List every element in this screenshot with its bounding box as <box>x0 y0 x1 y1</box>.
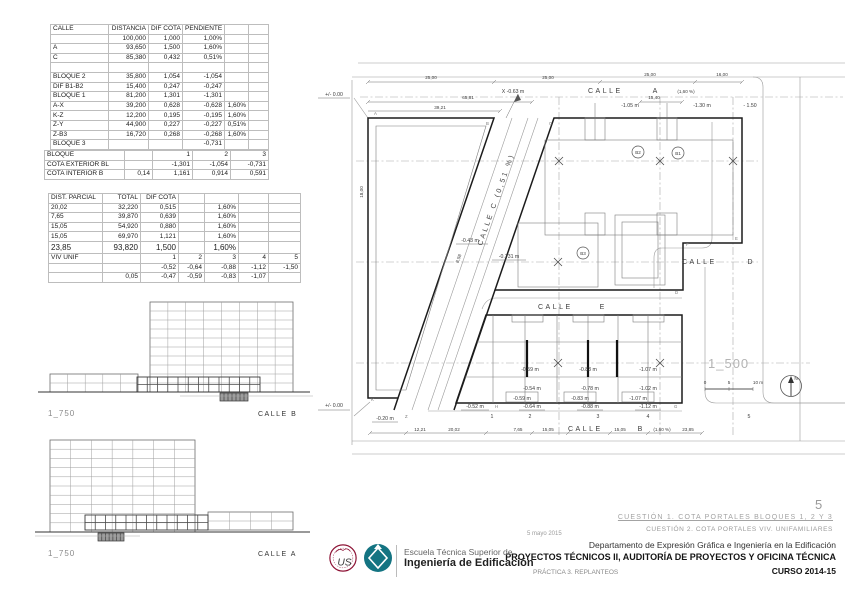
curso-label: CURSO 2014-15 <box>772 566 836 576</box>
elevation-a-street: CALLE A <box>258 551 297 558</box>
table-cell: 1,000 <box>149 34 183 44</box>
table-cell <box>205 194 239 204</box>
table-row: A93,6501,5001,60% <box>51 44 269 54</box>
datum-top: +/- 0.00 <box>325 92 343 98</box>
logo-divider <box>396 545 397 577</box>
table-cell: DIF COTA <box>149 25 183 35</box>
sb0: 0 <box>704 380 707 385</box>
calle-e-name: CALLE <box>538 304 573 311</box>
table-cell <box>125 160 153 170</box>
table-cell <box>103 253 141 263</box>
table-row: Z-Y44,9000,227-0,2270,51% <box>51 120 269 130</box>
table-cell: PENDIENTE <box>183 25 225 35</box>
bd-1505b: 15,05 <box>614 427 626 432</box>
v-b: B <box>486 121 489 126</box>
table-cell: -0,59 <box>179 273 205 283</box>
r-m112: -1.12 m <box>639 404 657 410</box>
bd-765: 7,65 <box>514 427 523 432</box>
table-cell <box>269 213 301 223</box>
elevation-b-scale: 1_750 <box>48 409 75 418</box>
table-row: BLOQUE 3-0,731 <box>51 140 269 150</box>
table-cell: 23,85 <box>49 241 103 253</box>
dim-1800: 18,00 <box>359 186 364 198</box>
m020: -0.20 m <box>376 416 394 422</box>
table-cell: COTA INTERIOR B <box>45 170 125 180</box>
table-cell: 0,227 <box>149 120 183 130</box>
m105: -1.05 m <box>621 103 639 109</box>
dim-3921: 39,21 <box>434 105 446 110</box>
table-cell: C <box>51 53 109 63</box>
table-cell: DIF COTA <box>141 194 179 204</box>
table-cell: 1,60% <box>225 101 249 111</box>
table-cell <box>225 44 249 54</box>
portal-markers <box>577 146 684 259</box>
table-cell: COTA EXTERIOR BL <box>45 160 125 170</box>
dim-25c: 25,00 <box>644 72 656 77</box>
table-cell <box>269 222 301 232</box>
north-arrow-icon: N <box>781 376 802 397</box>
table-cell: 1,054 <box>149 72 183 82</box>
table-cell <box>109 63 149 73</box>
table-cell <box>249 53 269 63</box>
university-seal-icon: US <box>328 543 358 573</box>
box-m107: -1.07 m <box>629 396 647 402</box>
dim-1540: 15,40 <box>648 95 660 100</box>
bd-2002: 20,02 <box>448 427 460 432</box>
scale: 1_500 <box>708 356 749 371</box>
table-cell: 20,02 <box>49 203 103 213</box>
table-cell: 1,60% <box>205 232 239 242</box>
table-row: -0,52-0,64-0,88-1,12-1,50 <box>49 263 301 273</box>
table-cell: -0,268 <box>183 130 225 140</box>
table-cell: 2 <box>179 253 205 263</box>
seal-monogram: US <box>337 558 351 569</box>
base-strip-grid <box>85 515 208 530</box>
calle-d-letter: D <box>747 259 752 266</box>
table-row: COTA INTERIOR B0,141,1610,9140,591 <box>45 170 269 180</box>
h-m054: -0.54 m <box>523 386 541 392</box>
v-f: F <box>686 242 689 247</box>
table-row: COTA EXTERIOR BL-1,301-1,054-0,731 <box>45 160 269 170</box>
h-m102: -1.02 m <box>639 386 657 392</box>
table-cell: -0,52 <box>141 263 179 273</box>
table-cell <box>179 194 205 204</box>
table-cell <box>249 63 269 73</box>
table-cell: 1,60% <box>205 213 239 223</box>
table-row: DIST. PARCIALTOTALDIF COTA <box>49 194 301 204</box>
table-cell <box>239 203 269 213</box>
dim-25b: 25,00 <box>542 75 554 80</box>
table-cell: 85,380 <box>109 53 149 63</box>
party-walls <box>527 340 617 377</box>
table-cell: BLOQUE 3 <box>51 140 109 150</box>
calle-b-slope: (1,60 %) <box>653 427 671 432</box>
elevation-calle-b: 1_750 CALLE B <box>30 292 322 424</box>
table-cell: 15,05 <box>49 232 103 242</box>
table-cell <box>225 72 249 82</box>
table-cell: -0,64 <box>179 263 205 273</box>
table-cell: -0,247 <box>183 82 225 92</box>
school-name-line1: Escuela Técnica Superior de <box>404 547 534 557</box>
table-cell: -1,054 <box>183 72 225 82</box>
table-cell: -0,88 <box>205 263 239 273</box>
department-label: Departamento de Expresión Gráfica e Inge… <box>589 540 836 550</box>
dim-16: 16,00 <box>716 72 728 77</box>
table-cell <box>179 241 205 253</box>
table-cell <box>239 194 269 204</box>
table-cell: 1,500 <box>141 241 179 253</box>
table-cell: 0,195 <box>149 111 183 121</box>
m043: -0.43 m <box>461 238 479 244</box>
table-cell: K-Z <box>51 111 109 121</box>
v-d: D <box>675 290 678 295</box>
table-row: A-X39,2000,628-0,6281,60% <box>51 101 269 111</box>
elevation-calle-a: 1_750 CALLE A <box>30 432 322 568</box>
table-cell: 100,000 <box>109 34 149 44</box>
table-cell: 44,900 <box>109 120 149 130</box>
table-cell: BLOQUE <box>45 151 125 161</box>
grid-axes <box>356 97 843 437</box>
road-edges <box>352 63 845 454</box>
table-cell <box>183 63 225 73</box>
m130: -1.30 m <box>693 103 711 109</box>
calle-a-letter: A <box>653 88 658 95</box>
n4: 4 <box>647 414 650 420</box>
table-cell: 0,914 <box>193 170 231 180</box>
n1: 1 <box>491 414 494 420</box>
table-cell <box>225 34 249 44</box>
table-cell <box>249 92 269 102</box>
table-cell <box>269 203 301 213</box>
table-cell: -0,628 <box>183 101 225 111</box>
table-cell <box>269 273 301 283</box>
h-m107: -1.07 m <box>639 367 657 373</box>
table-cell: 39,200 <box>109 101 149 111</box>
site-plan: N +/- 0.00 +/- 0.00 25,00 25,00 25,00 16… <box>310 52 848 464</box>
table-cell: -1,12 <box>239 263 269 273</box>
calle-d-name: CALLE <box>682 259 717 266</box>
school-logo-icon <box>362 542 394 574</box>
h-m083: -0.83 m <box>579 367 597 373</box>
table-cell: BLOQUE 1 <box>51 92 109 102</box>
elevation-b-street: CALLE B <box>258 411 297 418</box>
m150: - 1.50 <box>743 103 756 109</box>
table-cell <box>269 194 301 204</box>
table-cell <box>239 222 269 232</box>
table-cell <box>249 25 269 35</box>
table-cell: BLOQUE 2 <box>51 72 109 82</box>
table-cell: 0,639 <box>141 213 179 223</box>
table-row: BLOQUE123 <box>45 151 269 161</box>
table-cell: -0,731 <box>183 140 225 150</box>
table-cell: -0,47 <box>141 273 179 283</box>
calle-b-name: CALLE <box>568 426 603 433</box>
practice-label: PRÁCTICA 3. REPLANTEOS <box>533 569 618 576</box>
v-c: C <box>549 121 552 126</box>
table-cell: A <box>51 44 109 54</box>
calle-a-slope: (1,60 %) <box>677 89 695 94</box>
box-m083: -0.83 m <box>571 396 589 402</box>
table-cell: 1,60% <box>205 241 239 253</box>
calle-b-letter: B <box>638 426 643 433</box>
table-row: 23,8593,8201,5001,60% <box>49 241 301 253</box>
bd-1221: 12,21 <box>414 427 426 432</box>
table-cell: 0,880 <box>141 222 179 232</box>
table-cell: Z-B3 <box>51 130 109 140</box>
table-cell: 32,220 <box>103 203 141 213</box>
box-m059: -0.59 m <box>513 396 531 402</box>
table-cell: -1,301 <box>183 92 225 102</box>
table-cell: 3 <box>231 151 269 161</box>
elevation-a-scale: 1_750 <box>48 549 75 558</box>
table-cell: 54,920 <box>103 222 141 232</box>
table-cell <box>225 63 249 73</box>
table-cell <box>249 140 269 150</box>
v-a: A <box>374 111 377 116</box>
n2: 2 <box>529 414 532 420</box>
table-cell: 0,05 <box>103 273 141 283</box>
table-cell: 0,515 <box>141 203 179 213</box>
table-cell: 0,628 <box>149 101 183 111</box>
calle-a-name: CALLE <box>588 88 623 95</box>
v-k: K <box>371 397 374 402</box>
v-e: E <box>735 236 738 241</box>
b1: B1 <box>675 151 681 156</box>
table-cell <box>269 241 301 253</box>
table-cell: 1,60% <box>225 111 249 121</box>
table-cell <box>225 25 249 35</box>
table-cell: 93,650 <box>109 44 149 54</box>
table-cell: CALLE <box>51 25 109 35</box>
table-cell: 15,05 <box>49 222 103 232</box>
table-cell: 4 <box>239 253 269 263</box>
base-strip-grid <box>137 377 260 392</box>
table-cell: 0,51% <box>225 120 249 130</box>
table-cell: 1,60% <box>205 203 239 213</box>
table-cell <box>109 140 149 150</box>
table-cell: -0,83 <box>205 273 239 283</box>
table-cell: 12,200 <box>109 111 149 121</box>
r-m064: -0.64 m <box>523 404 541 410</box>
r-m088: -0.88 m <box>581 404 599 410</box>
table-cell: 1,60% <box>205 222 239 232</box>
b3: B3 <box>580 251 586 256</box>
table-cell: 35,800 <box>109 72 149 82</box>
table-cell: -1,301 <box>153 160 193 170</box>
table-cell: 1,301 <box>149 92 183 102</box>
n3: 3 <box>597 414 600 420</box>
table-cell <box>249 72 269 82</box>
table-cell: VIV UNIF <box>49 253 103 263</box>
table-cell: DISTANCIA <box>109 25 149 35</box>
table-row: 7,6539,8700,6391,60% <box>49 213 301 223</box>
v-g: G <box>674 404 678 409</box>
v-z: Z <box>405 414 408 419</box>
table-cell: -0,227 <box>183 120 225 130</box>
table-cell <box>225 92 249 102</box>
table-cell <box>51 63 109 73</box>
table-cell <box>249 34 269 44</box>
table-row: 0,05-0,47-0,59-0,83-1,07 <box>49 273 301 283</box>
dim-25a: 25,00 <box>425 75 437 80</box>
table-cell: 0,51% <box>183 53 225 63</box>
street-slope-table: CALLEDISTANCIADIF COTAPENDIENTE100,0001,… <box>50 24 269 150</box>
table-cell: -1,07 <box>239 273 269 283</box>
n5: 5 <box>748 414 751 420</box>
table-row: CALLEDISTANCIADIF COTAPENDIENTE <box>51 25 269 35</box>
table-cell: Z-Y <box>51 120 109 130</box>
table-cell: 69,970 <box>103 232 141 242</box>
table-row: C85,3800,4320,51% <box>51 53 269 63</box>
table-cell <box>179 203 205 213</box>
table-cell <box>51 34 109 44</box>
drawing-sheet: CALLEDISTANCIADIF COTAPENDIENTE100,0001,… <box>0 0 848 600</box>
table-cell <box>125 151 153 161</box>
table-cell <box>49 263 103 273</box>
wing-grid <box>208 512 293 530</box>
cuestion-1: CUESTIÓN 1. COTA PORTALES BLOQUES 1, 2 Y… <box>618 514 833 521</box>
table-cell: TOTAL <box>103 194 141 204</box>
table-cell: -1,054 <box>193 160 231 170</box>
table-cell: 0,591 <box>231 170 269 180</box>
datum-bottom: +/- 0.00 <box>325 403 343 409</box>
table-cell: 1,121 <box>141 232 179 242</box>
table-cell: 0,247 <box>149 82 183 92</box>
table-cell <box>149 63 183 73</box>
table-cell: 15,400 <box>109 82 149 92</box>
r-m052: -0.52 m <box>466 404 484 410</box>
table-cell <box>249 111 269 121</box>
b2: B2 <box>635 150 641 155</box>
table-cell <box>239 213 269 223</box>
date-label: 5 mayo 2015 <box>527 531 562 537</box>
table-cell: 5 <box>269 253 301 263</box>
north-letter: N <box>794 376 797 381</box>
table-cell: 1,00% <box>183 34 225 44</box>
v-h: H <box>495 404 498 409</box>
school-name-line2: Ingeniería de Edificación <box>404 557 534 569</box>
sb5: 5 <box>728 380 731 385</box>
table-cell <box>103 263 141 273</box>
dim-6581: 65,81 <box>462 95 474 100</box>
table-cell <box>225 140 249 150</box>
dist-parcial-table: DIST. PARCIALTOTALDIF COTA20,0232,2200,5… <box>48 193 301 283</box>
table-cell: 1 <box>141 253 179 263</box>
tower-grid <box>150 302 293 392</box>
calle-e-letter: E <box>600 304 605 311</box>
table-row <box>51 63 269 73</box>
wing-grid <box>50 374 138 392</box>
table-cell: 2 <box>193 151 231 161</box>
table-cell: -0,195 <box>183 111 225 121</box>
school-name: Escuela Técnica Superior de Ingeniería d… <box>404 547 534 569</box>
table-cell: 1,60% <box>225 130 249 140</box>
table-cell: 39,870 <box>103 213 141 223</box>
table-cell: 0,432 <box>149 53 183 63</box>
table-row: 15,0554,9200,8801,60% <box>49 222 301 232</box>
table-cell <box>249 101 269 111</box>
m0731: -0.731 m <box>499 254 519 260</box>
table-cell <box>179 232 205 242</box>
h-m078: -0.78 m <box>581 386 599 392</box>
table-cell: DIST. PARCIAL <box>49 194 103 204</box>
cuestion-2: CUESTIÓN 2. COTA PORTALES VIV. UNIFAMILI… <box>646 526 833 533</box>
table-cell <box>249 44 269 54</box>
course-title: PROYECTOS TÉCNICOS II, AUDITORÍA DE PROY… <box>505 552 836 562</box>
table-cell <box>149 140 183 150</box>
table-cell <box>239 232 269 242</box>
table-cell: -1,50 <box>269 263 301 273</box>
table-cell <box>225 82 249 92</box>
x-point: X -0.63 m <box>502 89 525 95</box>
table-row: VIV UNIF12345 <box>49 253 301 263</box>
table-cell: 16,720 <box>109 130 149 140</box>
table-row: BLOQUE 181,2001,301-1,301 <box>51 92 269 102</box>
table-row: Z-B316,7200,268-0,2681,60% <box>51 130 269 140</box>
table-cell <box>179 222 205 232</box>
table-row: 100,0001,0001,00% <box>51 34 269 44</box>
table-cell: 1,60% <box>183 44 225 54</box>
table-cell <box>239 241 269 253</box>
bloque-cotas-table: BLOQUE123COTA EXTERIOR BL-1,301-1,054-0,… <box>44 150 269 180</box>
table-cell: A-X <box>51 101 109 111</box>
bd-2385: 23,85 <box>682 427 694 432</box>
table-cell <box>269 232 301 242</box>
sb10: 10 m <box>753 380 763 385</box>
table-cell: 7,65 <box>49 213 103 223</box>
table-row: 15,0569,9701,1211,60% <box>49 232 301 242</box>
table-cell: 3 <box>205 253 239 263</box>
north-tick-arrowhead <box>514 94 521 102</box>
table-cell <box>49 273 103 283</box>
table-cell: 81,200 <box>109 92 149 102</box>
dimension-lines <box>318 80 753 435</box>
table-cell <box>179 213 205 223</box>
table-cell <box>249 120 269 130</box>
table-cell: 93,820 <box>103 241 141 253</box>
table-cell: 1,161 <box>153 170 193 180</box>
table-row: 20,0232,2200,5151,60% <box>49 203 301 213</box>
table-row: DIF B1-B215,4000,247-0,247 <box>51 82 269 92</box>
table-cell <box>225 53 249 63</box>
table-cell: 0,268 <box>149 130 183 140</box>
table-cell: 1,500 <box>149 44 183 54</box>
table-cell: DIF B1-B2 <box>51 82 109 92</box>
table-cell: 0,14 <box>125 170 153 180</box>
table-cell <box>249 130 269 140</box>
table-cell <box>249 82 269 92</box>
table-row: BLOQUE 235,8001,054-1,054 <box>51 72 269 82</box>
table-cell: 1 <box>153 151 193 161</box>
page-number: 5 <box>815 497 822 512</box>
table-row: K-Z12,2000,195-0,1951,60% <box>51 111 269 121</box>
bd-1505a: 15,05 <box>542 427 554 432</box>
tower-grid <box>50 440 195 532</box>
h-m059: -0.59 m <box>521 367 539 373</box>
table-cell: -0,731 <box>231 160 269 170</box>
